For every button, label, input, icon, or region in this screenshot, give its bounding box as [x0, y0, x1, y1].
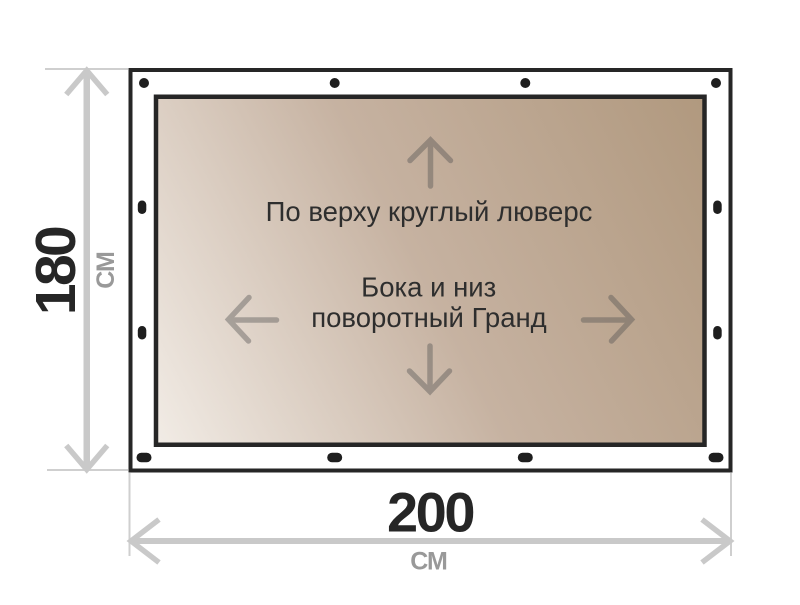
svg-text:Бока и низ: Бока и низ	[361, 272, 496, 303]
svg-text:СМ: СМ	[410, 548, 447, 576]
svg-text:поворотный Гранд: поворотный Гранд	[311, 302, 546, 333]
svg-text:По верху круглый люверс: По верху круглый люверс	[266, 196, 593, 227]
svg-text:СМ: СМ	[92, 252, 120, 289]
svg-text:200: 200	[387, 481, 473, 544]
svg-text:180: 180	[24, 227, 88, 315]
